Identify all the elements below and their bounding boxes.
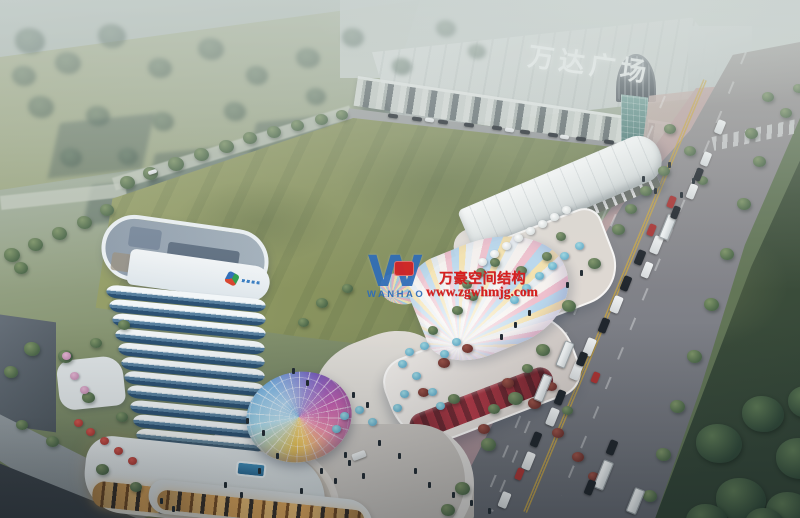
tree [4,248,20,262]
car [388,113,398,118]
tree [16,420,28,430]
car [438,119,448,124]
tree [116,412,128,422]
rendering-canvas: 万达广场 [0,0,800,518]
tree [562,300,576,312]
tree [298,318,309,327]
tree [336,110,348,120]
tree [4,366,18,378]
person-dot [276,453,279,459]
car [521,451,536,471]
person-dot [566,282,569,288]
tree [476,268,486,277]
tree [120,176,135,189]
tree [720,248,734,260]
tree [28,238,43,251]
umbrella [332,425,341,433]
umbrella [62,352,71,360]
car [529,431,542,448]
tree [198,38,224,60]
tree [152,112,174,131]
person-dot [452,492,455,498]
bus [626,487,646,515]
person-dot [692,178,695,184]
tree [687,350,702,363]
car [685,183,698,200]
person-dot [378,440,381,446]
tree [315,114,328,125]
tree [118,148,138,165]
tree [742,396,784,432]
tree [392,58,412,75]
car [597,317,610,334]
person-dot [668,162,671,168]
tree [552,428,564,438]
umbrella [114,447,123,455]
tree [267,126,281,138]
person-dot [428,482,431,488]
tree [246,66,268,85]
tree [542,252,552,261]
car [425,117,434,122]
umbrella [400,390,409,398]
tree [664,124,676,134]
person-dot [334,478,337,484]
car [520,129,530,134]
umbrella [502,242,511,250]
person-dot [514,322,517,328]
person-dot [320,468,323,474]
person-dot [654,188,657,194]
tree [296,48,320,68]
umbrella [562,206,571,214]
umbrella [86,428,95,436]
person-dot [398,453,401,459]
umbrella [478,258,487,266]
person-dot [172,506,175,512]
umbrella [74,419,83,427]
umbrella [548,262,557,270]
car [700,151,713,167]
tree [481,438,496,451]
tree [77,216,92,229]
tree [455,482,470,495]
person-dot [262,430,265,436]
car [412,116,422,121]
car [492,125,502,130]
tree [86,106,110,126]
car [560,134,569,139]
tree [14,262,28,274]
umbrella [560,252,569,260]
car [464,122,474,127]
tree [219,140,234,153]
tree [780,108,792,118]
person-dot [362,473,365,479]
car [497,491,511,509]
tree [306,88,326,105]
umbrella [393,404,402,412]
tree [291,120,304,131]
tree [96,464,109,475]
tree [670,400,685,413]
person-dot [348,460,351,466]
car [351,450,367,462]
car [576,136,586,141]
tree [52,227,67,240]
umbrella [412,372,421,380]
person-dot [240,492,243,498]
tree [612,224,625,235]
tree [243,132,257,144]
tree [452,306,463,315]
car [514,467,525,481]
tree [737,198,751,210]
umbrella [440,350,449,358]
tree [55,52,81,74]
person-dot [292,368,295,374]
car [605,439,618,456]
tree [625,204,637,214]
tree [640,186,652,196]
person-dot [470,500,473,506]
umbrella [526,227,535,235]
tree [468,292,478,301]
tree [572,452,584,462]
umbrella [510,296,519,304]
person-dot [224,482,227,488]
car [576,351,589,367]
tree [342,284,353,293]
person-dot [642,176,645,182]
tree [194,148,209,161]
bus [555,340,574,369]
tree [522,364,533,373]
tree [90,338,102,348]
tree [490,258,500,267]
person-dot [300,488,303,494]
umbrella [128,457,137,465]
tree [478,424,490,434]
scene-objects [0,0,800,518]
tree [745,128,758,139]
tree [448,394,460,404]
car [714,119,727,135]
umbrella [436,402,445,410]
umbrella [514,234,523,242]
umbrella [538,220,547,228]
umbrella [80,386,89,394]
tree [100,204,114,216]
tree [436,20,456,37]
tree [793,84,800,93]
tree [684,146,696,156]
tree [441,504,455,516]
tree [696,424,742,463]
tree [776,438,800,479]
tree [562,406,573,415]
car [545,407,560,427]
tree [118,320,130,330]
umbrella [70,372,79,380]
person-dot [366,402,369,408]
tree [656,448,671,461]
person-dot [680,192,683,198]
umbrella [490,250,499,258]
tree [15,28,45,54]
car [505,127,514,132]
tree [762,92,774,102]
person-dot [306,380,309,386]
tree [468,44,486,59]
umbrella [535,272,544,280]
car [553,389,566,406]
tree [516,266,527,275]
tree [428,326,438,335]
car [590,371,601,384]
person-dot [258,468,261,474]
person-dot [488,508,491,514]
tree [24,342,40,356]
tree [788,386,800,418]
umbrella [405,348,414,356]
umbrella [355,406,364,414]
tree [342,28,364,47]
tree [556,232,566,241]
umbrella [420,342,429,350]
umbrella [522,284,531,292]
car [604,139,614,144]
tree [46,436,59,447]
umbrella [452,338,461,346]
person-dot [160,498,163,504]
tree [130,482,142,492]
tree [28,96,54,118]
umbrella [340,412,349,420]
tree [98,24,126,48]
car [640,261,653,279]
tree [316,298,328,308]
umbrella [428,388,437,396]
person-dot [344,452,347,458]
tree [462,280,472,289]
umbrella [550,213,559,221]
car [548,132,558,137]
tree [753,156,766,167]
umbrella [575,242,584,250]
person-dot [500,334,503,340]
tree [536,344,550,356]
umbrella [398,360,407,368]
car [619,275,632,292]
umbrella [100,437,109,445]
tree [224,102,246,121]
tree [12,66,36,86]
tree [508,392,523,405]
tree [168,157,184,171]
person-dot [580,270,583,276]
person-dot [246,418,249,424]
person-dot [414,468,417,474]
umbrella [368,418,377,426]
tree [704,298,719,311]
person-dot [352,392,355,398]
tree [438,358,450,368]
person-dot [528,310,531,316]
car [609,295,624,314]
tree [658,166,670,176]
tree [502,378,514,388]
tree [462,344,473,353]
tree [60,148,82,167]
tree [588,258,601,269]
tree [148,58,172,78]
tree [488,404,500,414]
